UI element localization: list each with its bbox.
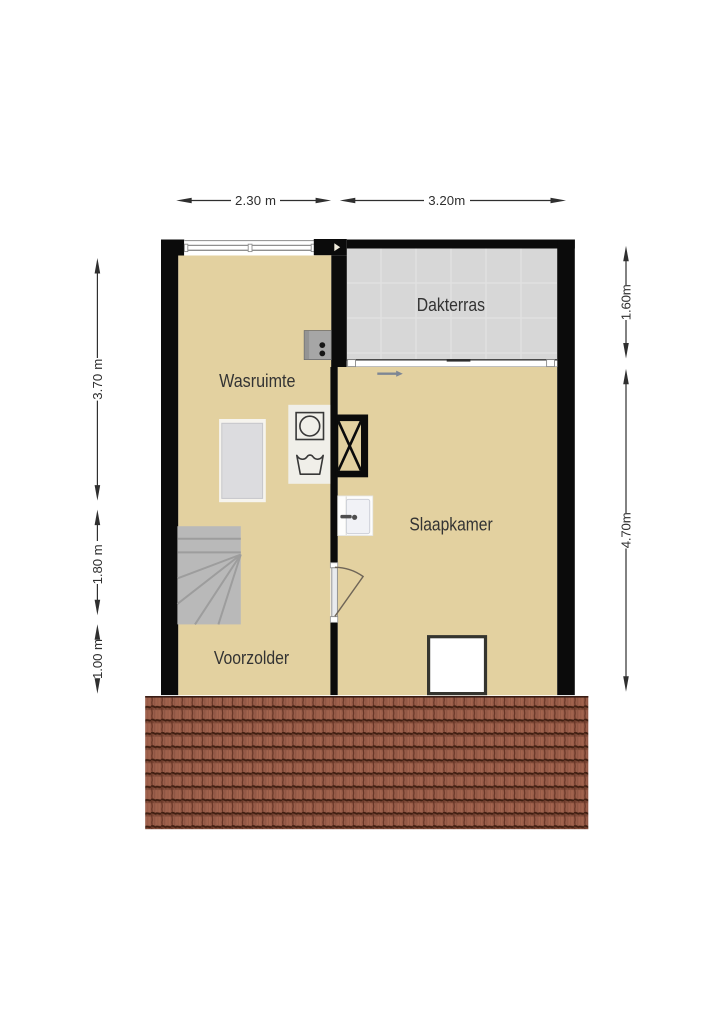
svg-text:3.20m: 3.20m bbox=[428, 193, 465, 208]
svg-text:3.70 m: 3.70 m bbox=[90, 359, 105, 400]
svg-text:Wasruimte: Wasruimte bbox=[219, 371, 295, 391]
svg-text:4.70m: 4.70m bbox=[619, 512, 634, 548]
svg-text:Voorzolder: Voorzolder bbox=[214, 648, 289, 668]
svg-text:2.30 m: 2.30 m bbox=[235, 193, 276, 208]
svg-text:1.80 m: 1.80 m bbox=[90, 544, 105, 584]
svg-text:1.60m: 1.60m bbox=[619, 284, 634, 320]
svg-text:1.00 m: 1.00 m bbox=[90, 639, 105, 679]
svg-text:Dakterras: Dakterras bbox=[417, 295, 485, 315]
svg-text:Slaapkamer: Slaapkamer bbox=[409, 514, 492, 534]
